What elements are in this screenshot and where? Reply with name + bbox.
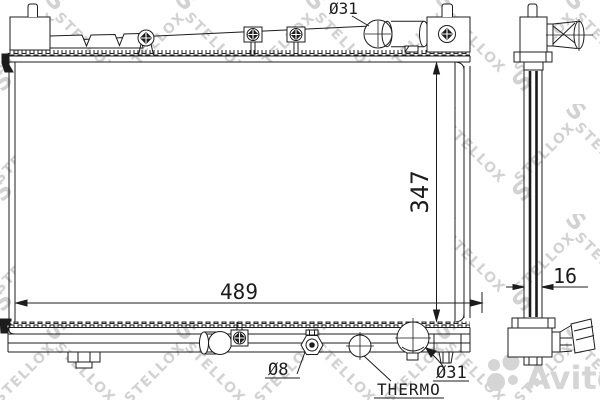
avito-logo-dot: [488, 359, 500, 371]
drain-petcock: [200, 332, 232, 355]
mount-pin: [528, 4, 537, 17]
core-width-label: 489: [220, 280, 258, 304]
thermo-label: THERMO: [377, 380, 441, 399]
radiator-drawing: STELLOX S STELLOX S abcp Avito: [0, 0, 600, 400]
inlet-diameter-label: Ø31: [329, 0, 358, 18]
avito-logo-dot: [508, 375, 518, 385]
radiator-drawing-canvas: STELLOX S STELLOX S abcp Avito: [0, 0, 600, 400]
bottom-right-foot: [439, 352, 453, 363]
mount-pin: [442, 4, 453, 17]
mount-pin: [28, 4, 38, 17]
drain-diameter-label: Ø8: [268, 360, 288, 380]
thickness-label: 16: [553, 264, 577, 288]
top-bracket-plate: [50, 34, 143, 49]
outlet-diameter-label: Ø31: [436, 363, 467, 383]
core-height-label: 347: [406, 170, 434, 213]
avito-logo-dot: [487, 373, 505, 391]
